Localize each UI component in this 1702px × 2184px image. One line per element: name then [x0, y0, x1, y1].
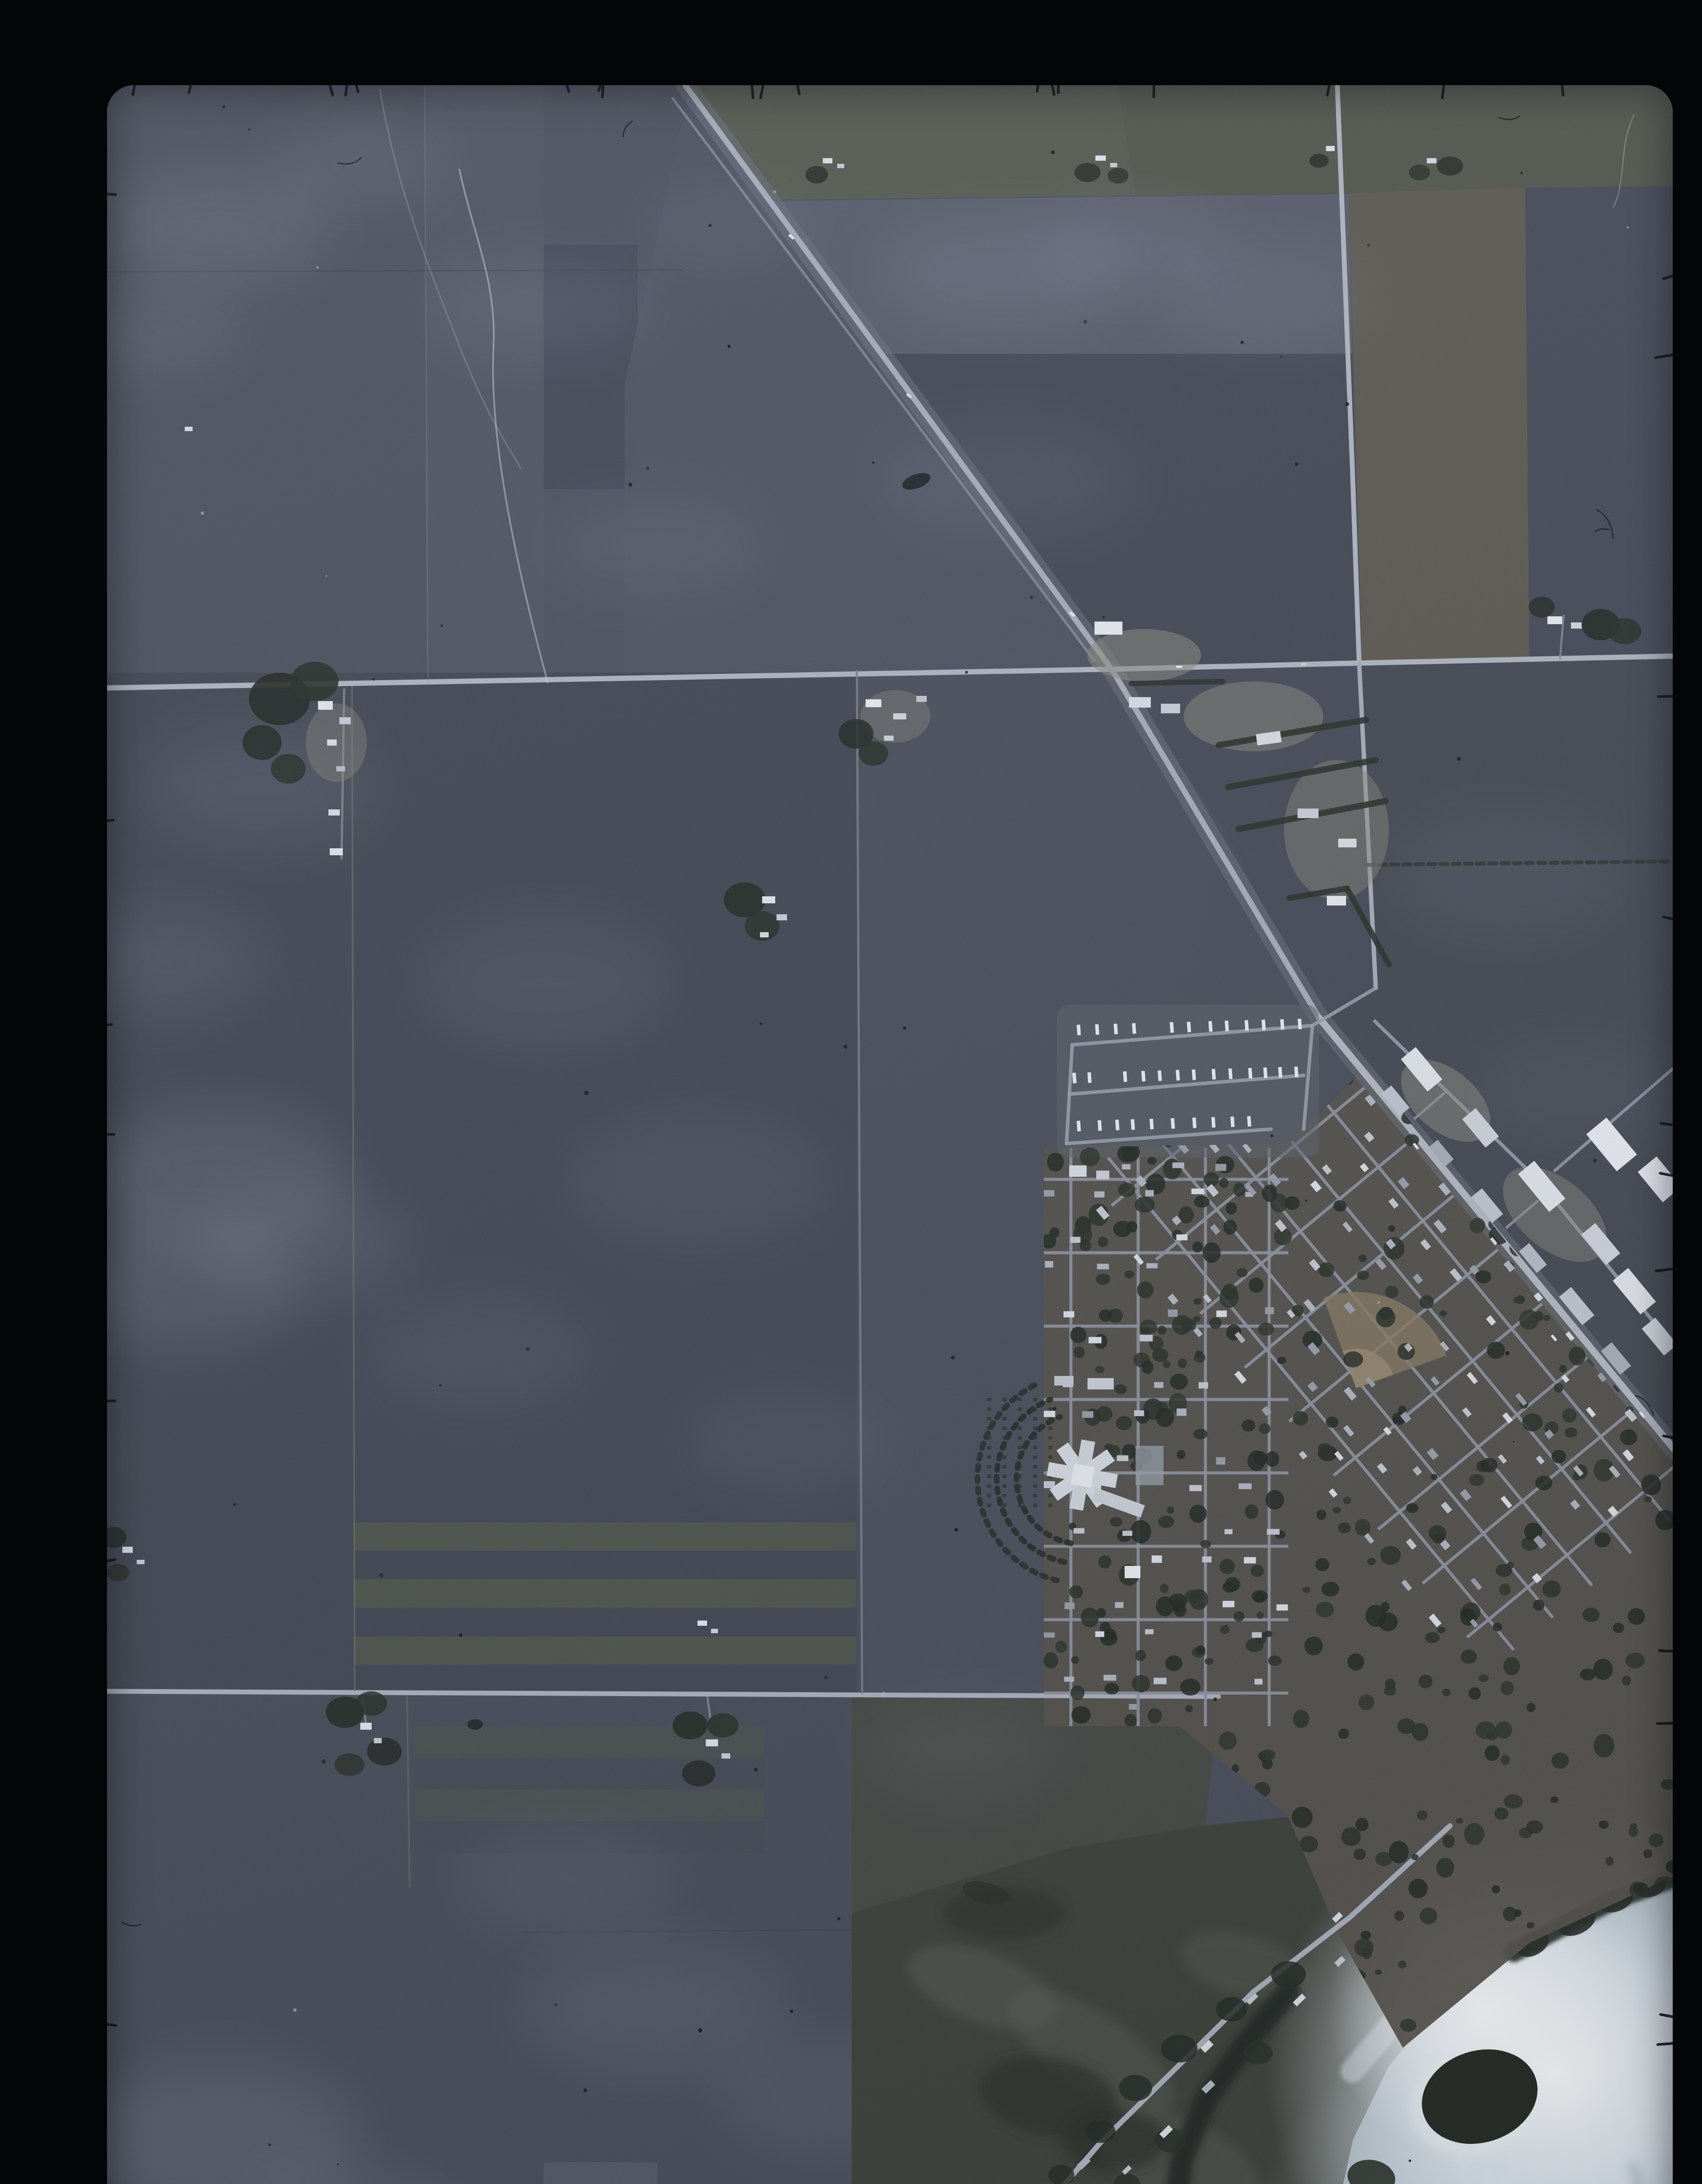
scanned-aerial-slide	[0, 0, 1702, 2184]
photo-area	[52, 55, 1702, 2184]
film-grain	[107, 85, 1673, 2184]
aerial-photo-svg	[0, 0, 1702, 2184]
